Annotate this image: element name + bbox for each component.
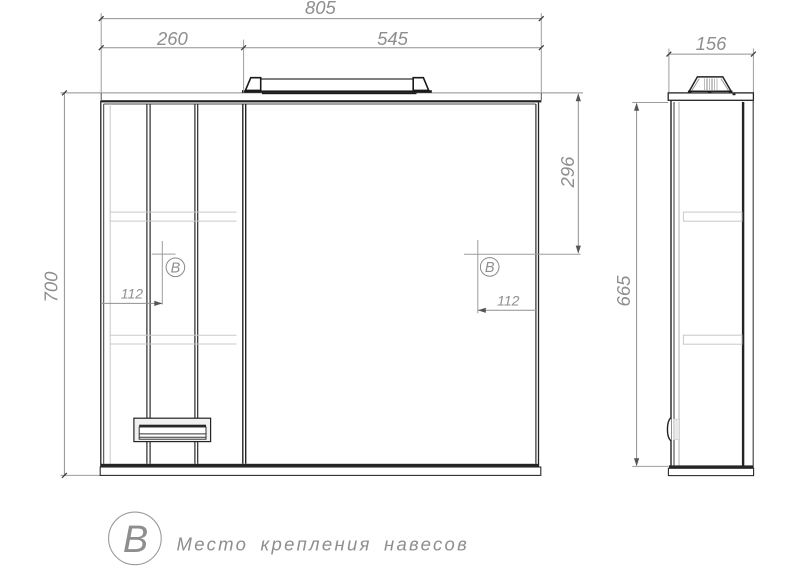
svg-text:156: 156 (696, 33, 728, 54)
svg-text:112: 112 (121, 286, 144, 302)
svg-text:B: B (123, 519, 148, 561)
svg-text:Место крепления навесов: Место крепления навесов (177, 534, 470, 555)
svg-text:B: B (485, 260, 495, 276)
svg-text:805: 805 (305, 0, 337, 18)
svg-text:112: 112 (497, 293, 520, 309)
svg-text:260: 260 (156, 28, 189, 49)
svg-text:700: 700 (41, 271, 62, 303)
svg-text:545: 545 (377, 28, 409, 49)
svg-text:B: B (171, 261, 181, 277)
svg-text:296: 296 (557, 156, 578, 189)
svg-text:665: 665 (613, 275, 634, 307)
